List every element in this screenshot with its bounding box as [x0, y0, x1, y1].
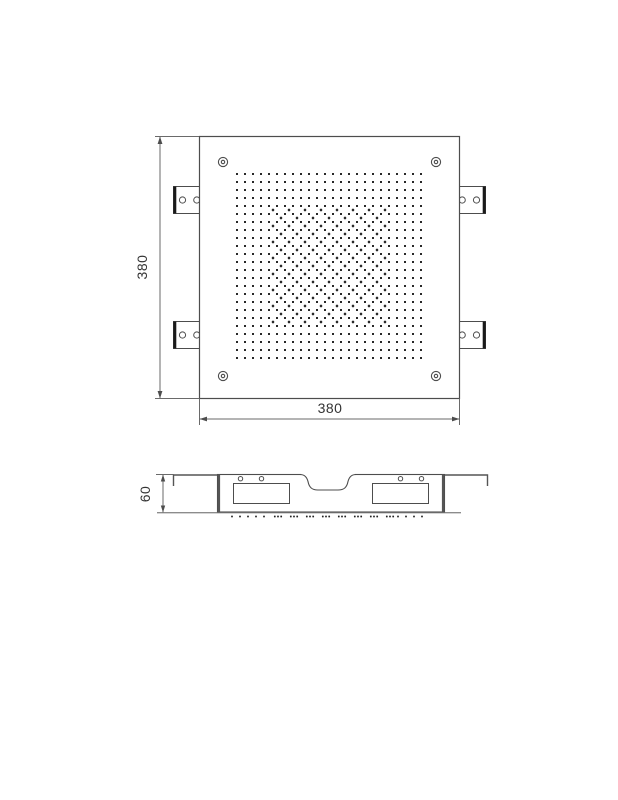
arrowhead-down-icon: [161, 506, 165, 513]
drawing-canvas: 380 380: [0, 0, 618, 800]
tab-hole: [179, 197, 185, 203]
dimension-height: [155, 137, 199, 399]
plan-view: 380 380: [134, 137, 486, 426]
arrowhead-up-icon: [158, 137, 163, 145]
tab-hole: [179, 332, 185, 338]
depth-dimension-label: 60: [137, 486, 153, 503]
technical-drawing-svg: 380 380: [0, 0, 618, 800]
arrowhead-down-icon: [158, 391, 163, 399]
spray-row: [231, 516, 423, 518]
arrowhead-up-icon: [161, 475, 165, 482]
panel-outline: [200, 137, 460, 399]
flange-hook-right: [445, 475, 488, 486]
tab-right-top: [459, 187, 485, 214]
arrowhead-left-icon: [200, 417, 208, 422]
tab-hole: [473, 332, 479, 338]
tab-left-top: [174, 187, 200, 214]
height-dimension-label: 380: [134, 255, 150, 280]
arrowhead-right-icon: [452, 417, 460, 422]
tab-right-bottom: [459, 322, 485, 349]
flange-hook-left: [174, 475, 218, 486]
tab-hole: [473, 197, 479, 203]
width-dimension-label: 380: [318, 400, 343, 416]
profile-view: 60: [137, 473, 488, 518]
dimension-depth: [156, 475, 174, 513]
tab-left-bottom: [174, 322, 200, 349]
